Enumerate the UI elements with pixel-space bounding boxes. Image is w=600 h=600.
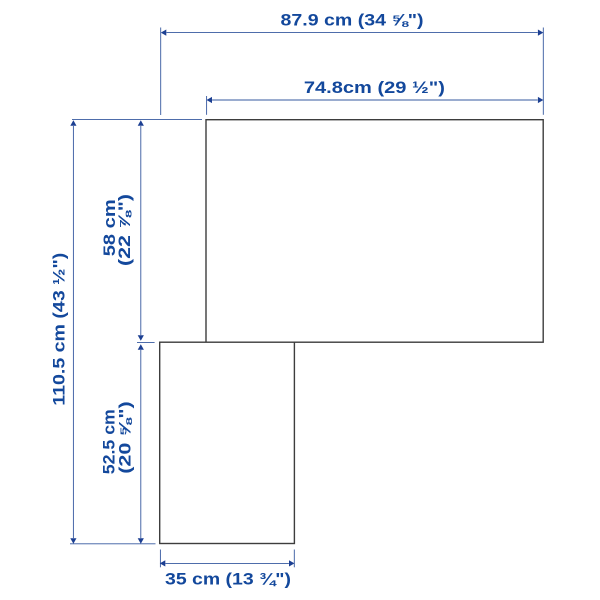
svg-text:(20 ⅝"): (20 ⅝") [116,401,135,474]
svg-text:35 cm (13 ¾"): 35 cm (13 ¾") [165,570,291,589]
svg-text:110.5 cm (43 ½"): 110.5 cm (43 ½") [50,253,69,406]
svg-text:87.9 cm (34 ⅝"): 87.9 cm (34 ⅝") [281,11,424,30]
svg-text:74.8cm (29 ½"): 74.8cm (29 ½") [304,78,445,97]
svg-text:(22 ⅞"): (22 ⅞") [115,194,134,266]
